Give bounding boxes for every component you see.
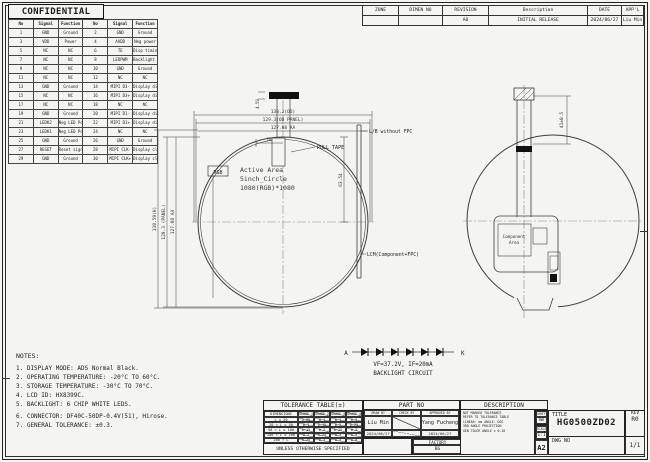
empty-cell <box>363 438 412 455</box>
revision-rev: A0 <box>443 16 489 26</box>
active-area-line1: Active Area <box>240 166 283 174</box>
note-line: 5. BACKLIGHT: 6 CHIP WHITE LEDS. <box>16 400 276 409</box>
pin-no: 5 <box>9 47 34 56</box>
pin-table-header-cell: Function <box>58 20 83 29</box>
revision-header-cell: DIMEN NO <box>399 6 443 16</box>
pin-function: Neg power <box>133 38 158 47</box>
component-area-label1: Component <box>503 234 526 239</box>
backlight-cathode-label: K <box>461 351 465 357</box>
backlight-anode-label: A <box>344 351 348 357</box>
revision-header-cell: APP'L <box>622 6 644 16</box>
pin-signal: GND <box>108 29 133 38</box>
drawing-labels: 130.2(OD) 129.3(OD PANEL) 127.08 AA 20 4… <box>152 99 565 377</box>
tolerance-value: 0.5 <box>330 438 346 443</box>
pin-function: NC <box>58 47 83 56</box>
component-area-label2: Area <box>509 240 520 245</box>
signature-date: 2024/06/27 <box>364 430 392 437</box>
tolerance-value: 0.25 <box>298 438 314 443</box>
pin-table-header-cell: Signal <box>33 20 58 29</box>
pin-signal: GND <box>33 29 58 38</box>
tolerance-table: TOLERANCE TABLE(±) DIMENSIONS GRADE 1GRA… <box>263 400 363 455</box>
title-label: TITLE <box>549 411 624 418</box>
pin-function: Ground <box>58 29 83 38</box>
revision-row: A0 INITIAL RELEASE 2024/06/27 Liu Min <box>363 16 644 26</box>
unit-cell: UNIT mm <box>535 410 548 425</box>
pin-no: 6 <box>83 47 108 56</box>
pin-no: 1 <box>9 29 34 38</box>
active-area-line3: 1080(RGB)*1080 <box>240 184 295 192</box>
fpc-dimension <box>533 96 571 144</box>
note-line: 6. CONNECTOR: DF40C-50DP-0.4V(51), Hiros… <box>16 412 276 421</box>
scale-cell: SCALE 1:1 <box>535 425 548 440</box>
factory-cell: FACTORY BG <box>412 438 463 455</box>
signature-name <box>392 416 420 430</box>
scale-value: 1:1 <box>536 432 547 439</box>
tolerance-footer: UNLESS OTHERWISE SPECIFIED <box>264 443 362 456</box>
revision-dimen-no <box>399 16 443 26</box>
tolerance-rows: L ≤ 20 0.05 0.1 0.1 0.2 20 < L ≤ 50 0.1 … <box>264 417 362 443</box>
rev-value: R0 <box>626 416 644 423</box>
component-area-outline <box>494 216 558 272</box>
signature-grid: DRAW BY Liu Min 2024/06/27 CHECK BY APPR… <box>363 410 460 438</box>
centerlines <box>192 100 374 314</box>
dim-width-outline: 130.2(OD) <box>271 109 295 115</box>
revision-header-row: ZONEDIMEN NOREVISIONDescriptionDATEAPP'L <box>363 6 644 16</box>
pin-no: 4 <box>83 38 108 47</box>
dwg-no-section: DWG NO <box>548 437 625 455</box>
dwg-no-label: DWG NO <box>549 437 624 444</box>
pin-signal: AVDD <box>108 38 133 47</box>
tolerance-row: 200 < L 0.25 0.3 0.5 0.8 <box>264 438 362 443</box>
pin-function: Ground <box>133 29 158 38</box>
revision-header-cell: REVISION <box>443 6 489 16</box>
unit-value: mm <box>536 417 547 424</box>
tolerance-value: 0.8 <box>346 438 362 443</box>
side-label-top: L/B without FPC <box>369 129 412 135</box>
pin-signal: VDD <box>33 38 58 47</box>
backlight-circuit <box>352 348 454 356</box>
pin-table-row: 3 VDD Power 4 AVDD Neg power <box>9 38 158 47</box>
connector-seat <box>533 228 547 244</box>
pin-signal: TE <box>108 47 133 56</box>
side-label-bottom: LCM(Component+FPC) <box>367 252 419 258</box>
dim-width-aa: 127.08 AA <box>271 125 296 131</box>
active-area-line2: 5inch_Circle <box>240 175 287 183</box>
note-line: 2. OPERATING TEMPERATURE: -20°C TO 60°C. <box>16 373 276 382</box>
pull-tape-tab <box>272 138 285 166</box>
backlight-spec: VF=37.2V, IF=20mA <box>373 362 433 368</box>
title-section: TITLE HG0500ZD02 <box>548 410 625 437</box>
dim-radius: 63.54 <box>338 173 344 187</box>
pin-function: Power <box>58 38 83 47</box>
revision-table: ZONEDIMEN NOREVISIONDescriptionDATEAPP'L… <box>362 5 644 26</box>
factory-value: BG <box>413 445 462 454</box>
tolerance-value: 0.3 <box>314 438 330 443</box>
rear-centerlines <box>463 85 643 318</box>
rgb-label: RGB <box>213 170 222 176</box>
signature-date <box>392 430 420 437</box>
dim-height-aa: 127.08 AA <box>170 210 176 235</box>
sheet-number: 1/1 <box>625 437 645 455</box>
pin-table-header-row: NoSignalFunctionNoSignalFunction <box>9 20 158 29</box>
signature-name: Yang Fucheng <box>421 416 459 430</box>
revision-header-cell: DATE <box>588 6 622 16</box>
pin-table-header-cell: No <box>9 20 34 29</box>
notes-section: NOTES: 1. DISPLAY MODE: ADS Normal Black… <box>16 352 276 430</box>
part-no-header: PART NO <box>363 400 460 410</box>
lcd-drawing: 130.2(OD) 129.3(OD PANEL) 127.08 AA 20 4… <box>0 58 650 398</box>
rear-view <box>463 85 643 318</box>
pin-table-row: 5 NC NC 6 TE Disp timing effect out <box>9 47 158 56</box>
note-line: 3. STORAGE TEMPERATURE: -30°C TO 70°C. <box>16 382 276 391</box>
signature-name: Liu Min <box>364 416 392 430</box>
revision-approval: Liu Min <box>622 16 644 26</box>
pin-table-header-cell: No <box>83 20 108 29</box>
drawing-number: HG0500ZD02 <box>549 418 624 428</box>
pin-table-header-cell: Function <box>133 20 158 29</box>
dim-width-panel: 129.3(OD PANEL) <box>263 117 304 123</box>
pin-signal: NC <box>33 47 58 56</box>
standards-notes: NOT MARKED TOLERANCEREFER TO TOLERANCE T… <box>460 410 535 455</box>
sheet-size: A2 <box>535 440 548 455</box>
pin-no: 2 <box>83 29 108 38</box>
revision-header-cell: ZONE <box>363 6 399 16</box>
signature-column: APPROVED BY Yang Fucheng 2024/06/27 <box>421 410 459 437</box>
tolerance-table-title: TOLERANCE TABLE(±) <box>264 401 362 411</box>
note-line: 1. DISPLAY MODE: ADS Normal Black. <box>16 364 276 373</box>
tolerance-range: 200 < L <box>264 438 298 443</box>
pull-tape-label: PULL TAPE <box>317 145 344 151</box>
revision-date: 2024/06/27 <box>588 16 622 26</box>
pin-no: 3 <box>9 38 34 47</box>
revision-body: A0 INITIAL RELEASE 2024/06/27 Liu Min <box>363 16 644 26</box>
top-connector <box>269 92 299 99</box>
signature-column: DRAW BY Liu Min 2024/06/27 <box>364 410 392 437</box>
confidential-stamp: CONFIDENTIAL <box>8 4 104 19</box>
revision-description: INITIAL RELEASE <box>489 16 588 26</box>
revision-zone <box>363 16 399 26</box>
title-block: TOLERANCE TABLE(±) DIMENSIONS GRADE 1GRA… <box>263 400 645 455</box>
note-line: 4. LCD ID: HX8399C. <box>16 391 276 400</box>
dim-height-panel: 129.3 (PANEL) <box>161 204 167 239</box>
note-line: 7. GENERAL TOLERANCE: ±0.3. <box>16 421 276 430</box>
pin-table-header-cell: Signal <box>108 20 133 29</box>
dim-fpc-length: 41±0.5 <box>559 112 565 129</box>
standards-line: GEN TOLER ANGLE ± 0.10 <box>463 429 532 433</box>
rev-section: REV R0 <box>625 410 645 437</box>
signature-date: 2024/06/27 <box>421 430 459 437</box>
revision-header-cell: Description <box>489 6 588 16</box>
description-header: DESCRIPTION <box>460 400 548 410</box>
front-view <box>154 92 374 314</box>
dim-height-outline: 138.59(H) <box>152 207 158 231</box>
backlight-circuit-label: BACKLIGHT CIRCUIT <box>373 371 433 377</box>
dim-tab-width: 20 <box>267 137 272 142</box>
pin-function: Disp timing effect out <box>133 47 158 56</box>
dim-connector: 4.59 <box>255 99 260 109</box>
fpc-connector-band <box>516 146 532 152</box>
pin-table-row: 1 GND Ground 2 GND Ground <box>9 29 158 38</box>
notes-list: 1. DISPLAY MODE: ADS Normal Black.2. OPE… <box>16 364 276 430</box>
vertical-dimension-lines <box>154 92 348 308</box>
drawing-sheet: CONFIDENTIAL NoSignalFunctionNoSignalFun… <box>0 0 650 462</box>
notes-title: NOTES: <box>16 352 276 361</box>
signature-column: CHECK BY <box>392 410 420 437</box>
